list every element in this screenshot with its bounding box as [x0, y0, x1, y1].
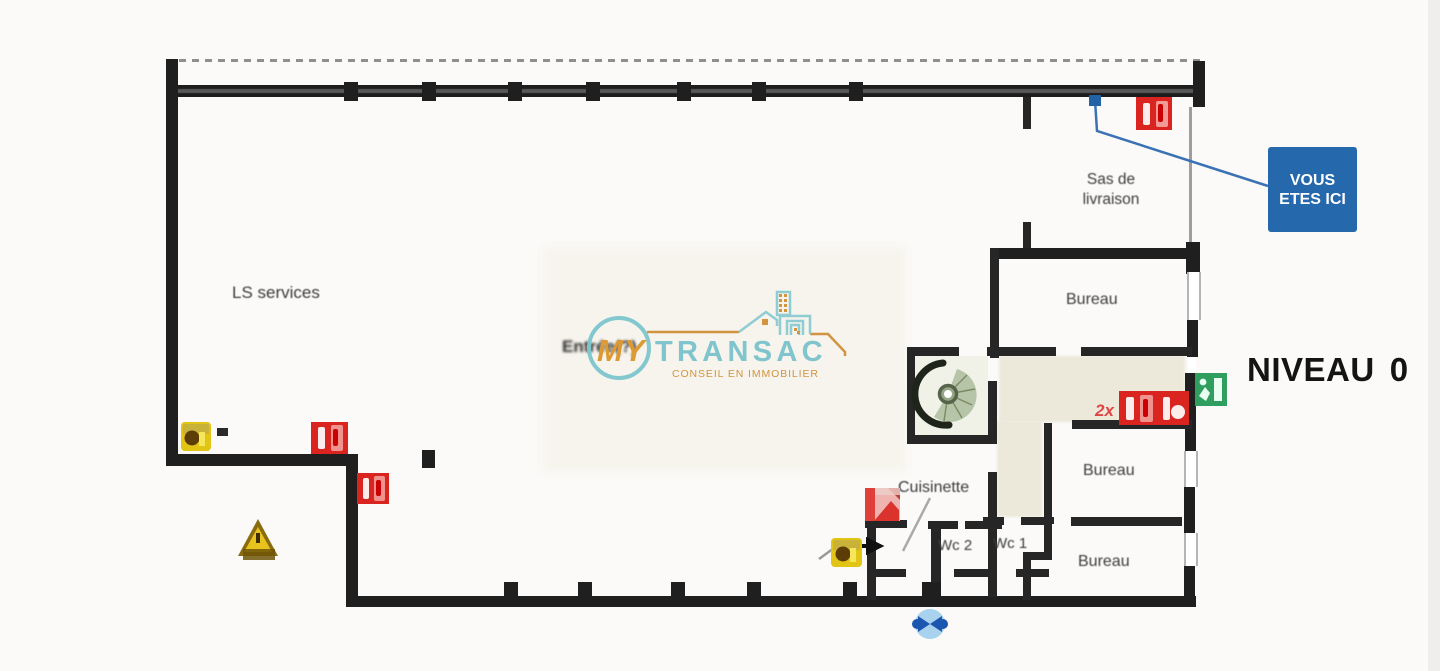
- svg-text:TRANSAC: TRANSAC: [655, 336, 827, 368]
- svg-text:2x: 2x: [1094, 401, 1115, 420]
- svg-text:MY: MY: [597, 333, 648, 368]
- svg-text:CONSEIL EN IMMOBILIER: CONSEIL EN IMMOBILIER: [672, 368, 819, 380]
